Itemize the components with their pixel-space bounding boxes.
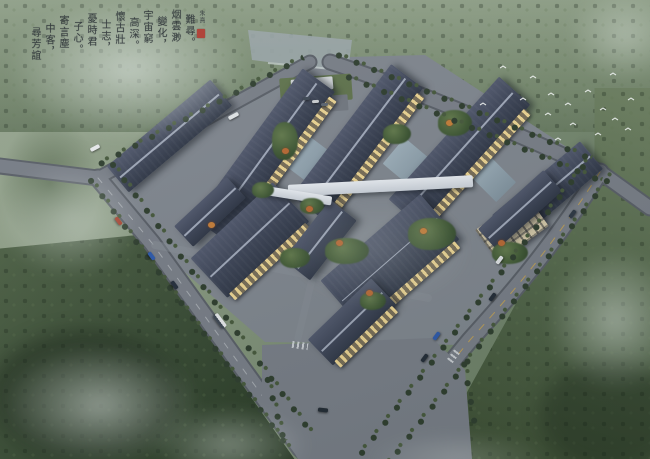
calligraphy-column: 士志， — [98, 19, 111, 54]
parked-car — [312, 100, 319, 103]
calligraphy-signature: 朱熹 — [198, 10, 205, 24]
architectural-rendering-scene: 難尋。 烟雲渺 變化， 宇宙窮 高深。 懷古壯 士志， 憂時君 子心。 寄言塵 … — [0, 0, 650, 459]
calligraphy-column: 懷古壯 — [112, 11, 125, 46]
calligraphy-column: 宇宙窮 — [140, 10, 153, 45]
calligraphy-column: 寄言塵 — [56, 15, 69, 50]
parked-car — [321, 103, 328, 106]
autumn-tree — [336, 240, 343, 246]
autumn-tree — [208, 222, 215, 228]
autumn-tree — [306, 206, 313, 212]
birds-flock — [455, 48, 650, 143]
calligraphy-column: 烟雲渺 — [168, 9, 181, 44]
parked-car — [303, 97, 310, 100]
autumn-tree — [498, 240, 505, 246]
autumn-tree — [282, 148, 289, 154]
calligraphy-column: 尋芳誼 — [28, 27, 41, 62]
calligraphy-column: 變化， — [154, 16, 167, 51]
calligraphy-poem: 難尋。 烟雲渺 變化， 宇宙窮 高深。 懷古壯 士志， 憂時君 子心。 寄言塵 … — [8, 2, 213, 86]
calligraphy-column: 難尋。 — [182, 14, 195, 49]
calligraphy-column: 中客， — [42, 23, 55, 58]
calligraphy-column: 子心。 — [70, 21, 83, 56]
calligraphy-column: 憂時君 — [84, 13, 97, 48]
autumn-tree — [420, 228, 427, 234]
autumn-tree — [366, 290, 373, 296]
calligraphy-column: 高深。 — [126, 17, 139, 52]
red-seal-stamp — [197, 29, 205, 38]
